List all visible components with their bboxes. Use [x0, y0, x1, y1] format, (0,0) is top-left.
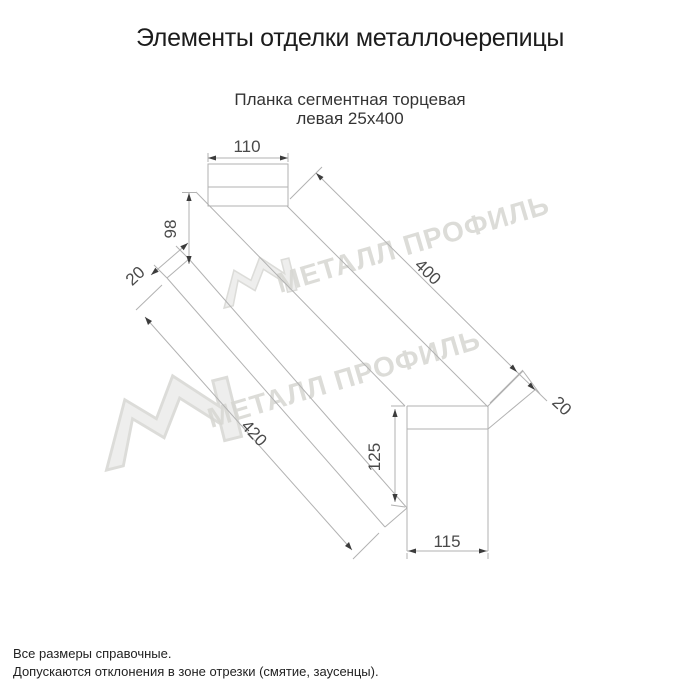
page: Элементы отделки металлочерепицы Планка … [0, 0, 700, 700]
watermark-2: МЕТАЛЛ ПРОФИЛЬ [88, 324, 484, 470]
dim-label-left-height-98: 98 [161, 220, 180, 239]
watermark-1: МЕТАЛЛ ПРОФИЛЬ [214, 189, 553, 308]
dim-label-left-lip-20: 20 [122, 263, 149, 290]
footer-note-2: Допускаются отклонения в зоне отрезки (с… [13, 663, 663, 681]
dim-label-right-width-115: 115 [433, 532, 460, 551]
dim-label-right-lip-20: 20 [548, 393, 575, 420]
technical-drawing: МЕТАЛЛ ПРОФИЛЬ МЕТАЛЛ ПРОФИЛЬ 110 98 20 … [0, 0, 700, 700]
dim-label-top-flange-110: 110 [233, 137, 260, 156]
dim-label-right-height-125: 125 [365, 443, 384, 471]
drawing-svg: МЕТАЛЛ ПРОФИЛЬ МЕТАЛЛ ПРОФИЛЬ 110 98 20 … [0, 0, 700, 700]
footer-notes: Все размеры справочные. Допускаются откл… [13, 645, 663, 681]
watermark-text: МЕТАЛЛ ПРОФИЛЬ [204, 324, 484, 434]
footer-note-1: Все размеры справочные. [13, 645, 663, 663]
dim-label-length-400: 400 [411, 255, 445, 288]
watermark-text: МЕТАЛЛ ПРОФИЛЬ [273, 189, 553, 299]
